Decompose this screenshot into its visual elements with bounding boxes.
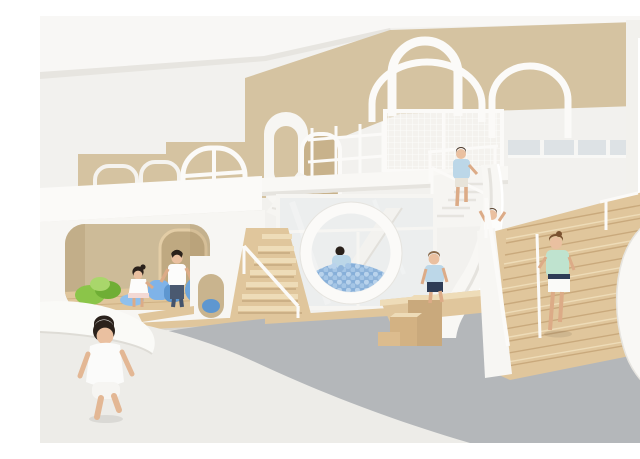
play-nook-opening [65, 224, 211, 310]
clerestory-windows [508, 140, 632, 158]
playground-photo: Bright kindergarten playroom with sculpt… [40, 16, 640, 443]
